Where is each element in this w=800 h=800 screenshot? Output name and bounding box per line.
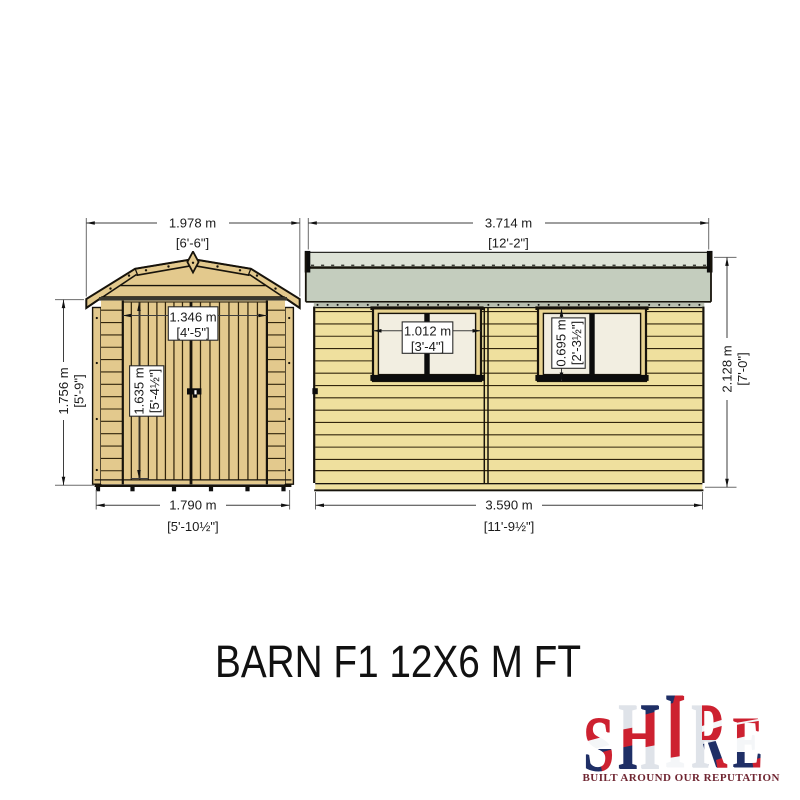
svg-text:BUILT AROUND OUR REPUTATION: BUILT AROUND OUR REPUTATION bbox=[583, 772, 780, 784]
svg-text:3.590 m: 3.590 m bbox=[485, 498, 532, 513]
svg-text:BARN F1 12X6 M FT: BARN F1 12X6 M FT bbox=[215, 636, 581, 687]
svg-text:[12'-2"]: [12'-2"] bbox=[488, 236, 529, 251]
svg-text:1.790 m: 1.790 m bbox=[169, 498, 216, 513]
svg-text:1.978 m: 1.978 m bbox=[169, 215, 216, 230]
svg-text:[11'-9½"]: [11'-9½"] bbox=[484, 519, 535, 534]
svg-text:[5'-4½"]: [5'-4½"] bbox=[147, 369, 162, 413]
svg-text:1.635 m: 1.635 m bbox=[132, 367, 147, 414]
svg-text:3.714 m: 3.714 m bbox=[485, 215, 532, 230]
svg-text:2.128 m: 2.128 m bbox=[720, 345, 735, 392]
svg-text:0.695 m: 0.695 m bbox=[554, 319, 569, 366]
svg-text:[6'-6"]: [6'-6"] bbox=[176, 236, 209, 251]
svg-text:1.756 m: 1.756 m bbox=[56, 367, 71, 414]
svg-text:[7'-0"]: [7'-0"] bbox=[735, 352, 750, 385]
svg-text:[5'-10½"]: [5'-10½"] bbox=[167, 519, 219, 534]
svg-text:[2'-3½"]: [2'-3½"] bbox=[569, 321, 584, 365]
svg-text:1.346 m: 1.346 m bbox=[169, 310, 216, 325]
svg-text:1.012 m: 1.012 m bbox=[404, 323, 451, 338]
svg-text:[3'-4"]: [3'-4"] bbox=[411, 339, 444, 354]
svg-text:[5'-9"]: [5'-9"] bbox=[72, 374, 87, 407]
svg-text:[4'-5"]: [4'-5"] bbox=[176, 325, 209, 340]
